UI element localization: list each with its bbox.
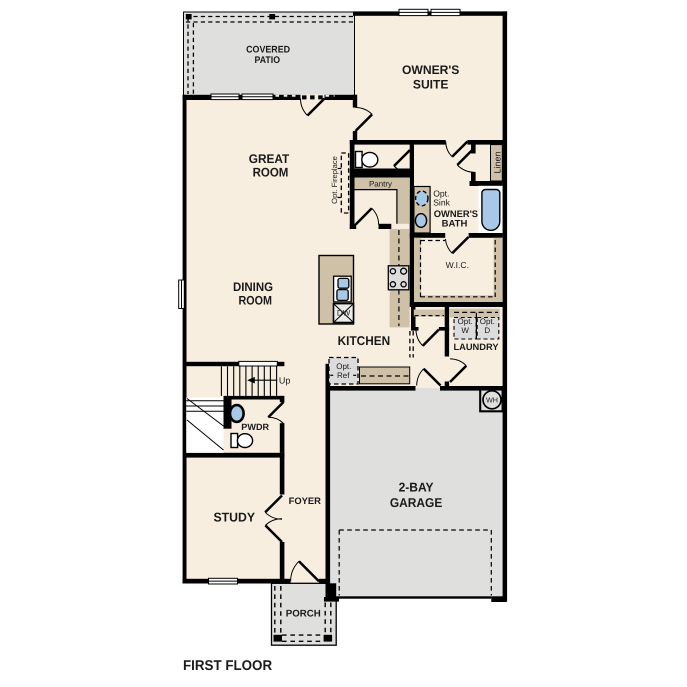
svg-text:Pantry: Pantry [369,179,392,188]
svg-text:Ref: Ref [337,371,350,380]
svg-text:ROOM: ROOM [238,293,272,307]
svg-text:W.I.C.: W.I.C. [446,260,469,270]
svg-text:BATH: BATH [442,219,468,230]
svg-text:Opt.: Opt. [336,362,351,371]
svg-text:PATIO: PATIO [255,55,281,66]
svg-text:LAUNDRY: LAUNDRY [453,342,499,352]
svg-text:WH: WH [486,395,498,404]
svg-text:PWDR: PWDR [241,422,269,432]
svg-text:Linen: Linen [492,151,502,173]
svg-text:GREAT: GREAT [249,152,290,166]
svg-text:2-BAY: 2-BAY [399,480,434,495]
svg-text:DINING: DINING [233,280,273,294]
svg-text:D: D [484,326,490,335]
svg-text:Sink: Sink [433,197,450,207]
svg-text:Opt. Fireplace: Opt. Fireplace [330,156,339,204]
svg-text:OWNER'S: OWNER'S [402,63,459,77]
svg-text:ROOM: ROOM [253,165,289,179]
svg-text:Opt.: Opt. [480,317,495,326]
svg-text:FIRST FLOOR: FIRST FLOOR [183,658,272,674]
svg-text:W: W [461,326,469,335]
svg-text:Opt.: Opt. [458,317,473,326]
svg-text:KITCHEN: KITCHEN [338,334,391,348]
svg-text:STUDY: STUDY [214,510,256,525]
svg-text:PORCH: PORCH [286,608,321,619]
svg-text:COVERED: COVERED [246,44,290,55]
svg-text:GARAGE: GARAGE [390,495,443,510]
svg-text:Up: Up [279,375,291,385]
svg-text:DW: DW [337,309,351,318]
svg-text:FOYER: FOYER [289,495,322,506]
svg-text:SUITE: SUITE [413,77,449,91]
